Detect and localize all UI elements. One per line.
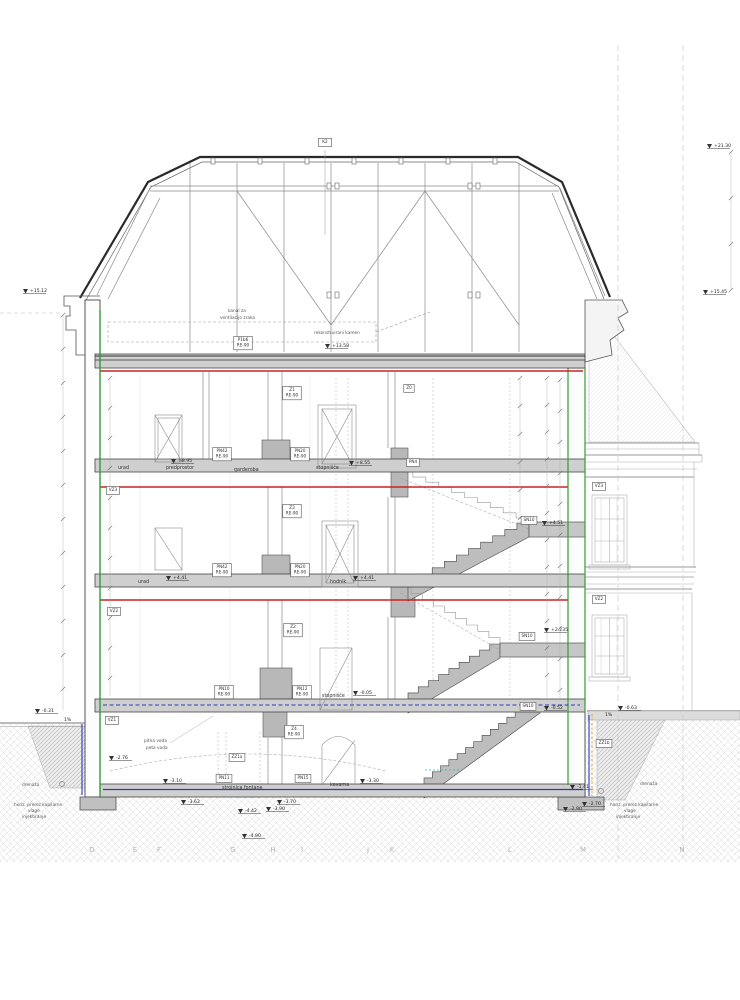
tag-pn42: PN42RE-90 <box>213 563 232 576</box>
grid-axis-letter: H <box>270 846 275 854</box>
walls <box>64 296 628 810</box>
grid-axis-letter: L <box>508 846 512 854</box>
level-value: +4.41 <box>360 575 374 581</box>
level-triangle-icon <box>360 779 365 784</box>
tag-vz2: VZ2 <box>592 595 605 603</box>
tag-pn20: PN20RE-90 <box>291 447 310 460</box>
level-value: 1% <box>605 712 613 718</box>
tag-label: PN12 <box>297 686 308 691</box>
facade-window-1 <box>589 495 630 569</box>
level-marker: +2.235 <box>544 627 568 633</box>
tag-sn10: SN10 <box>519 632 535 640</box>
tag-z0: Z0 <box>404 384 414 392</box>
level-marker: +4.41 <box>166 575 189 581</box>
room-label: urad <box>138 579 149 585</box>
note-label: rekonstruirani kamen <box>314 330 360 336</box>
tag-label: RE-90 <box>294 569 307 574</box>
vent-duct-branch <box>376 312 430 332</box>
cornice-middle <box>585 567 696 593</box>
level-value: +4.51 <box>549 520 563 526</box>
vault-dashed-arc <box>110 754 386 771</box>
level-value: -3.70 <box>284 799 296 805</box>
tag-label: PN42 <box>217 564 228 569</box>
level-triangle-icon <box>23 289 28 294</box>
tag-label: SN10 <box>521 633 532 638</box>
level-value: -3.30 <box>367 778 379 784</box>
level-marker: +8.55 <box>349 460 372 466</box>
level-value: -2.76 <box>116 755 128 761</box>
note-label: injektiranje <box>22 814 46 820</box>
note-label: horiz. prerez kapilarne <box>14 802 62 808</box>
level-value: -0.31 <box>42 708 54 714</box>
truss-frame <box>97 163 605 352</box>
level-marker: +4.51 <box>542 520 565 526</box>
note-label: kanal za <box>228 308 246 314</box>
level-value: +13.58 <box>332 343 349 349</box>
tag-label: PN11 <box>219 775 230 780</box>
level-triangle-icon <box>163 779 168 784</box>
level-value: +15.12 <box>30 288 47 294</box>
tag-k2: K2 <box>318 138 331 146</box>
level-value: -1.41 <box>577 784 589 790</box>
stair-flight-light <box>400 472 529 523</box>
level-value: -3.10 <box>170 778 182 784</box>
level-marker: +15.12 <box>23 288 47 294</box>
level-marker: -3.30 <box>360 778 383 784</box>
note-label: vlage <box>28 808 40 814</box>
room-label: stopnišče <box>322 692 345 699</box>
level-marker: +8.95 <box>171 458 194 464</box>
note-leader <box>170 716 213 743</box>
level-value: 1% <box>64 717 72 723</box>
grid-axis-letter: G <box>230 846 235 854</box>
tag-label: Z4 <box>291 726 297 731</box>
stair-slope-dashed <box>400 593 500 650</box>
level-marker: 1% <box>605 712 613 718</box>
facade-elevation <box>585 303 702 711</box>
tag-vz3: VZ3 <box>592 482 605 490</box>
tag-z1: Z1RE-90 <box>283 386 302 399</box>
level-value: +4.41 <box>173 575 187 581</box>
section-drawing-canvas: K2P1b6RE-90Z1RE-90Z0PN42RE-90PN20RE-90PN… <box>0 0 740 1000</box>
tag-label: PN15 <box>298 775 309 780</box>
level-value: +15.45 <box>710 289 727 295</box>
roof-structure <box>80 150 610 352</box>
level-value: -3.62 <box>188 799 200 805</box>
tag-label: ZZ1a <box>232 754 243 759</box>
level-marker: -3.10 <box>163 778 186 784</box>
tag-z3: Z3RE-90 <box>283 504 302 517</box>
room-label: kavarna <box>330 782 349 788</box>
tag-label: P1b6 <box>238 337 249 342</box>
grid-axis-letter: M <box>580 846 586 854</box>
level-marker: +4.41 <box>353 575 376 581</box>
tag-vz3: VZ3 <box>106 486 119 494</box>
tag-label: K2 <box>322 139 328 144</box>
level-value: -2.90 <box>570 806 582 812</box>
pier-corbels <box>260 440 415 737</box>
level-triangle-icon <box>353 691 358 696</box>
tag-label: RE-90 <box>286 510 299 515</box>
room-label: predprostor <box>166 465 194 471</box>
level-marker: 1% <box>64 717 72 723</box>
level-value: -3.90 <box>273 806 285 812</box>
left-exterior-wall <box>85 300 100 797</box>
cornice-upper <box>585 443 702 477</box>
tag-label: PN20 <box>295 448 306 453</box>
tag-label: VZ3 <box>595 483 604 488</box>
level-value: -4.90 <box>249 833 261 839</box>
tag-label: VZ3 <box>109 487 118 492</box>
level-value: +21.30 <box>714 143 731 149</box>
level-marker: -0.63 <box>618 705 641 711</box>
tag-label: VZ2 <box>595 596 604 601</box>
tag-label: ZZ1b <box>598 740 609 745</box>
tag-zz1b: ZZ1b <box>596 739 612 747</box>
tag-label: RE-90 <box>286 392 299 397</box>
level-marker: +13.58 <box>325 343 349 349</box>
level-triangle-icon <box>35 709 40 714</box>
stair-flight <box>408 523 529 601</box>
level-marker: -2.76 <box>109 755 132 761</box>
grid-axis-letter: K <box>390 846 395 854</box>
note-label: horiz. prerez kapilarne <box>610 802 658 808</box>
tag-label: RE-90 <box>294 453 307 458</box>
tag-zz1a: ZZ1a <box>229 753 245 761</box>
room-label: stopnišče <box>316 464 339 471</box>
tag-label: Z3 <box>289 505 295 510</box>
level-value: -2.70 <box>589 801 601 807</box>
tag-label: RE-90 <box>287 629 300 634</box>
tag-pn11: PN11 <box>216 774 232 782</box>
grid-axis-letter: F <box>157 846 161 854</box>
stair-flight <box>424 699 540 798</box>
tag-pn12: PN12RE-90 <box>293 685 312 698</box>
tag-label: Z1 <box>289 387 295 392</box>
tag-label: Z2 <box>290 624 296 629</box>
grid-axis-letter: E <box>133 846 137 854</box>
tag-label: RE-90 <box>296 691 309 696</box>
tag-label: Z0 <box>406 385 412 390</box>
purlin-blocks <box>211 158 497 298</box>
level-marker: +15.45 <box>703 289 727 295</box>
tag-sn10: SN10 <box>520 702 536 710</box>
window-f1-left <box>155 528 182 570</box>
note-label: injektiranje <box>616 814 640 820</box>
tag-label: PN4 <box>409 459 418 464</box>
window-f2-left <box>155 415 182 462</box>
level-triangle-icon <box>618 706 623 711</box>
grid-axis-letter: J <box>366 846 369 854</box>
tag-label: PN20 <box>295 564 306 569</box>
level-value: -0.52 <box>551 705 563 711</box>
tag-pn42: PN42RE-90 <box>213 447 232 460</box>
level-triangle-icon <box>707 144 712 149</box>
tag-label: PN42 <box>217 448 228 453</box>
tag-pn4: PN4 <box>406 458 419 466</box>
tag-label: RE-90 <box>216 453 229 458</box>
level-value: +2.235 <box>551 627 568 633</box>
level-value: -0.63 <box>625 705 637 711</box>
roof-outline <box>80 157 610 298</box>
level-value: -4.42 <box>245 808 257 814</box>
grid-axis-letter: D <box>89 846 94 854</box>
stair-slope-dashed <box>400 478 529 529</box>
facade-window-2 <box>589 615 630 681</box>
tag-z4: Z4RE-90 <box>285 725 304 738</box>
level-triangle-icon <box>325 344 330 349</box>
door-f2 <box>318 405 356 468</box>
level-value: +8.55 <box>356 460 370 466</box>
level-marker: -0.05 <box>353 690 376 696</box>
room-label: hodnik <box>330 579 346 585</box>
tag-label: SN10 <box>522 703 533 708</box>
tag-label: RE-90 <box>237 342 250 347</box>
tag-label: SN10 <box>523 517 534 522</box>
note-label: ventilacijo zraka <box>220 315 255 321</box>
level-value: +8.95 <box>178 458 192 464</box>
tag-z2: Z2RE-90 <box>284 623 303 636</box>
roof-inner-line <box>86 162 604 300</box>
stair-landing <box>500 643 585 657</box>
section-drawing-sheet: K2P1b6RE-90Z1RE-90Z0PN42RE-90PN20RE-90PN… <box>0 0 740 1000</box>
room-label: urad <box>118 465 129 471</box>
tag-label: RE-90 <box>288 731 301 736</box>
note-label: peta voda <box>146 745 168 751</box>
note-label: pitna voda <box>144 738 167 744</box>
left-footing <box>80 797 116 810</box>
tag-label: PN10 <box>219 686 230 691</box>
level-triangle-icon <box>544 628 549 633</box>
level-triangle-icon <box>703 290 708 295</box>
tag-label: VZ2 <box>110 608 119 613</box>
room-label: strojnica fontane <box>222 785 263 791</box>
level-triangle-icon <box>109 756 114 761</box>
tag-label: RE-90 <box>218 691 231 696</box>
note-label: drenaža <box>640 780 658 787</box>
tag-sn10: SN10 <box>521 516 537 524</box>
grid-axis-letter: N <box>679 846 684 854</box>
grid-axis-letter: I <box>301 846 303 854</box>
level-value: -0.05 <box>360 690 372 696</box>
tag-label: RE-90 <box>216 569 229 574</box>
door-basement-arched <box>322 737 355 786</box>
note-label: vlage <box>624 808 636 814</box>
tag-pn15: PN15 <box>295 774 311 782</box>
tag-vz2: VZ2 <box>107 607 120 615</box>
level-marker: +21.30 <box>707 143 731 149</box>
tag-pn20: PN20RE-90 <box>291 563 310 576</box>
tag-p1b6: P1b6RE-90 <box>234 336 253 349</box>
tag-label: VZ1 <box>108 717 117 722</box>
tag-vz1: VZ1 <box>105 716 118 724</box>
tag-pn10: PN10RE-90 <box>215 685 234 698</box>
room-label: garderoba <box>234 467 259 473</box>
level-marker: -0.31 <box>35 708 58 714</box>
note-label: drenaža <box>22 781 40 788</box>
